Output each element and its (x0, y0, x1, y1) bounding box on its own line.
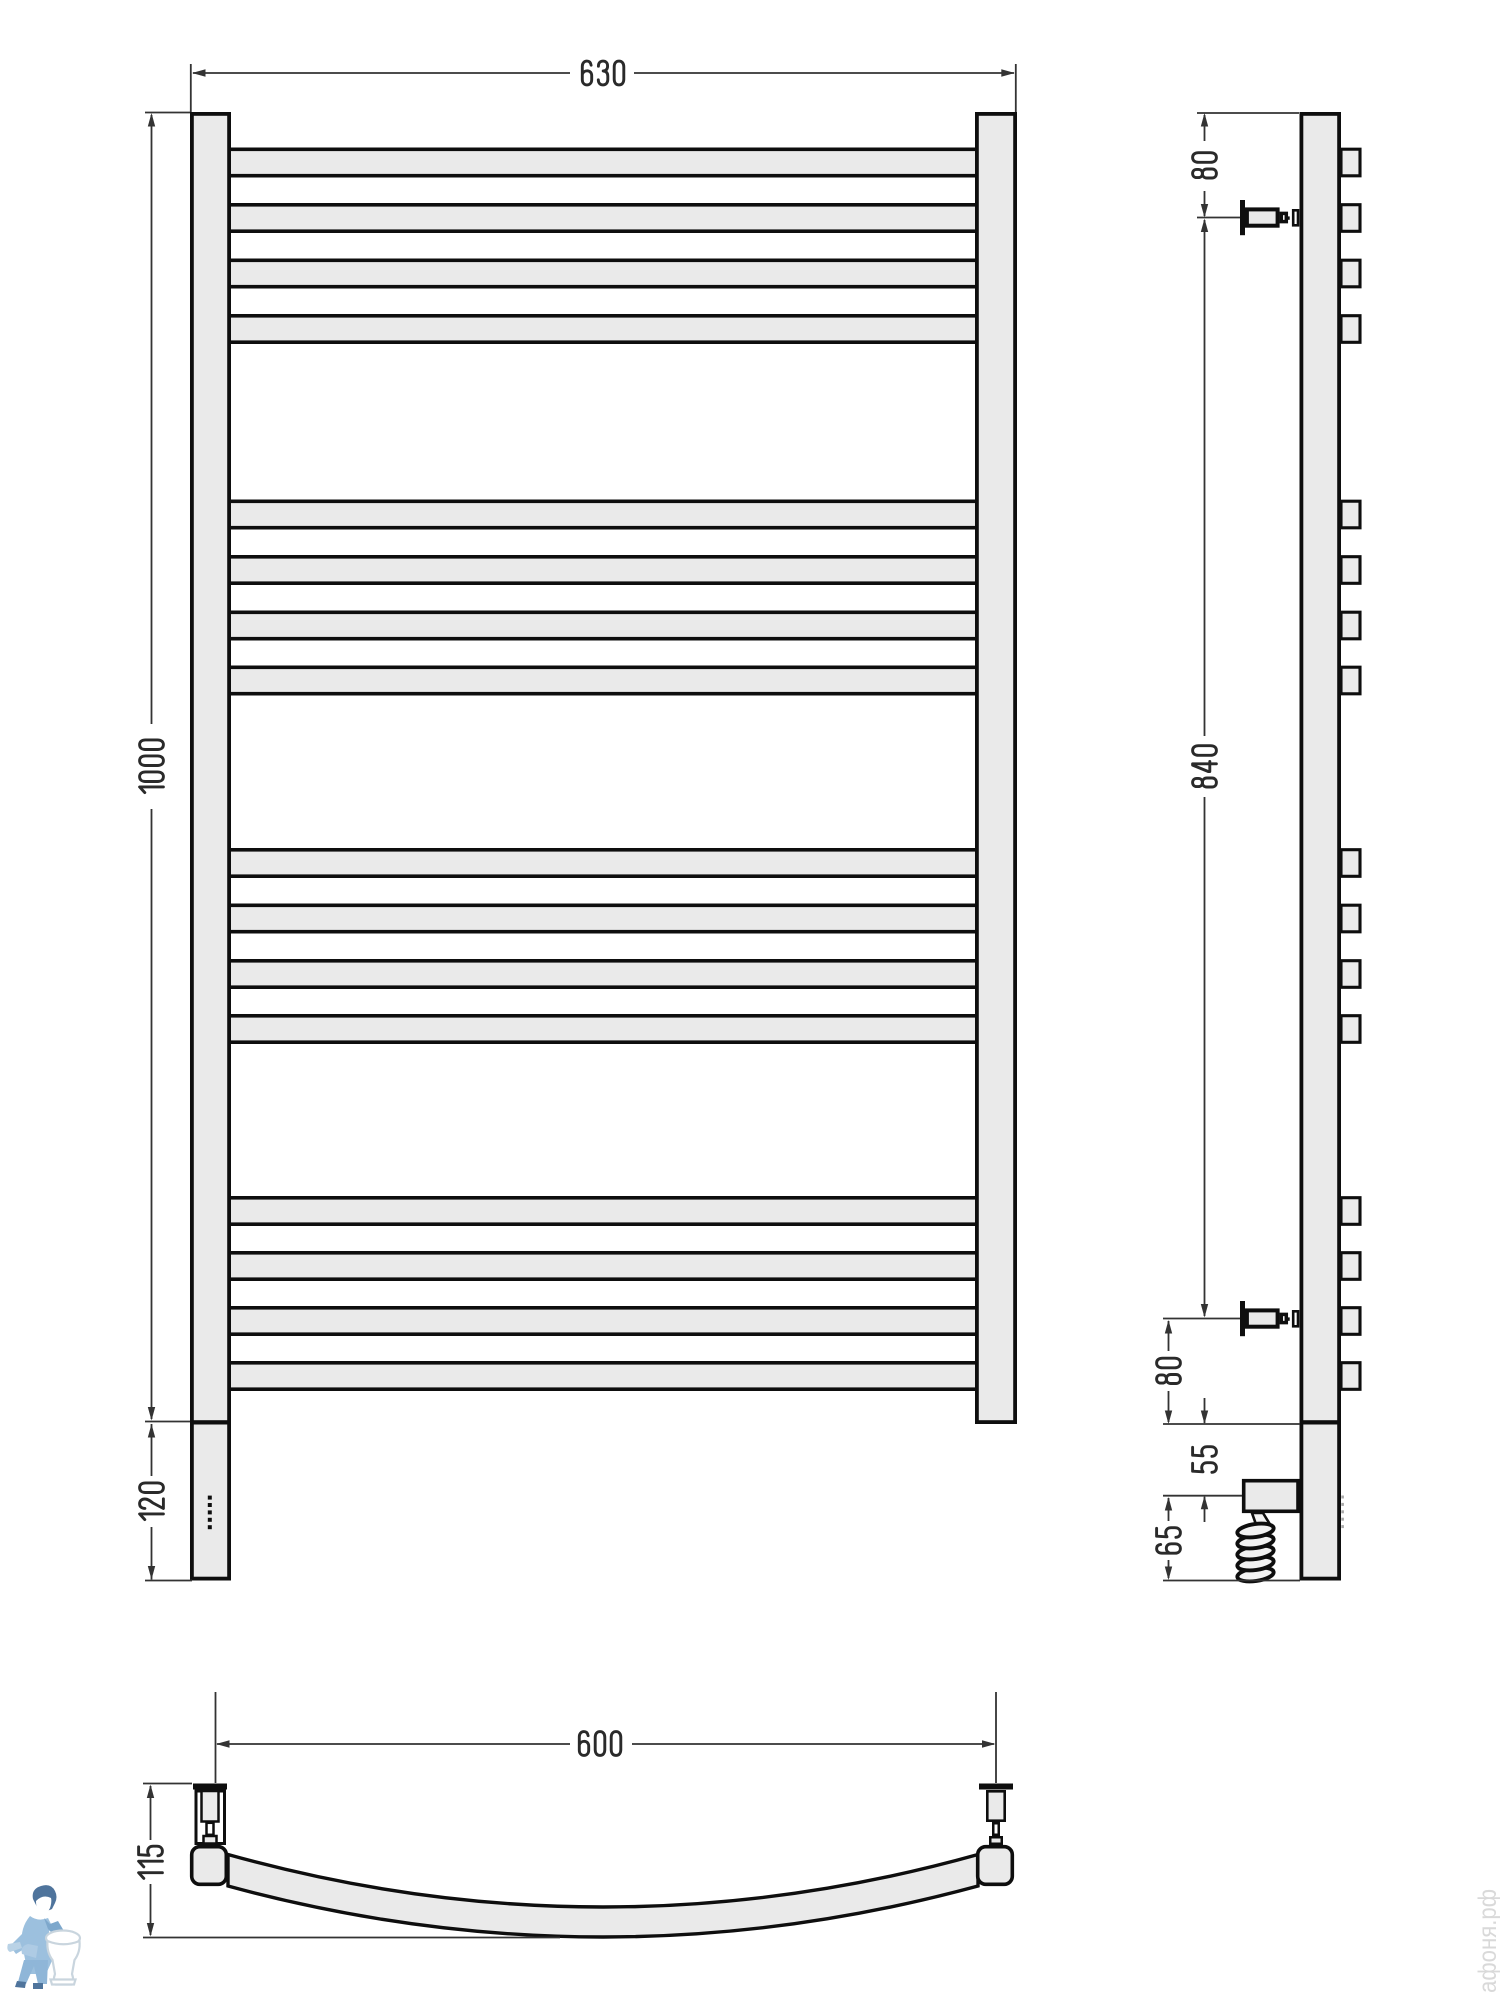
svg-text:афоня.рф: афоня.рф (1474, 1889, 1500, 1993)
